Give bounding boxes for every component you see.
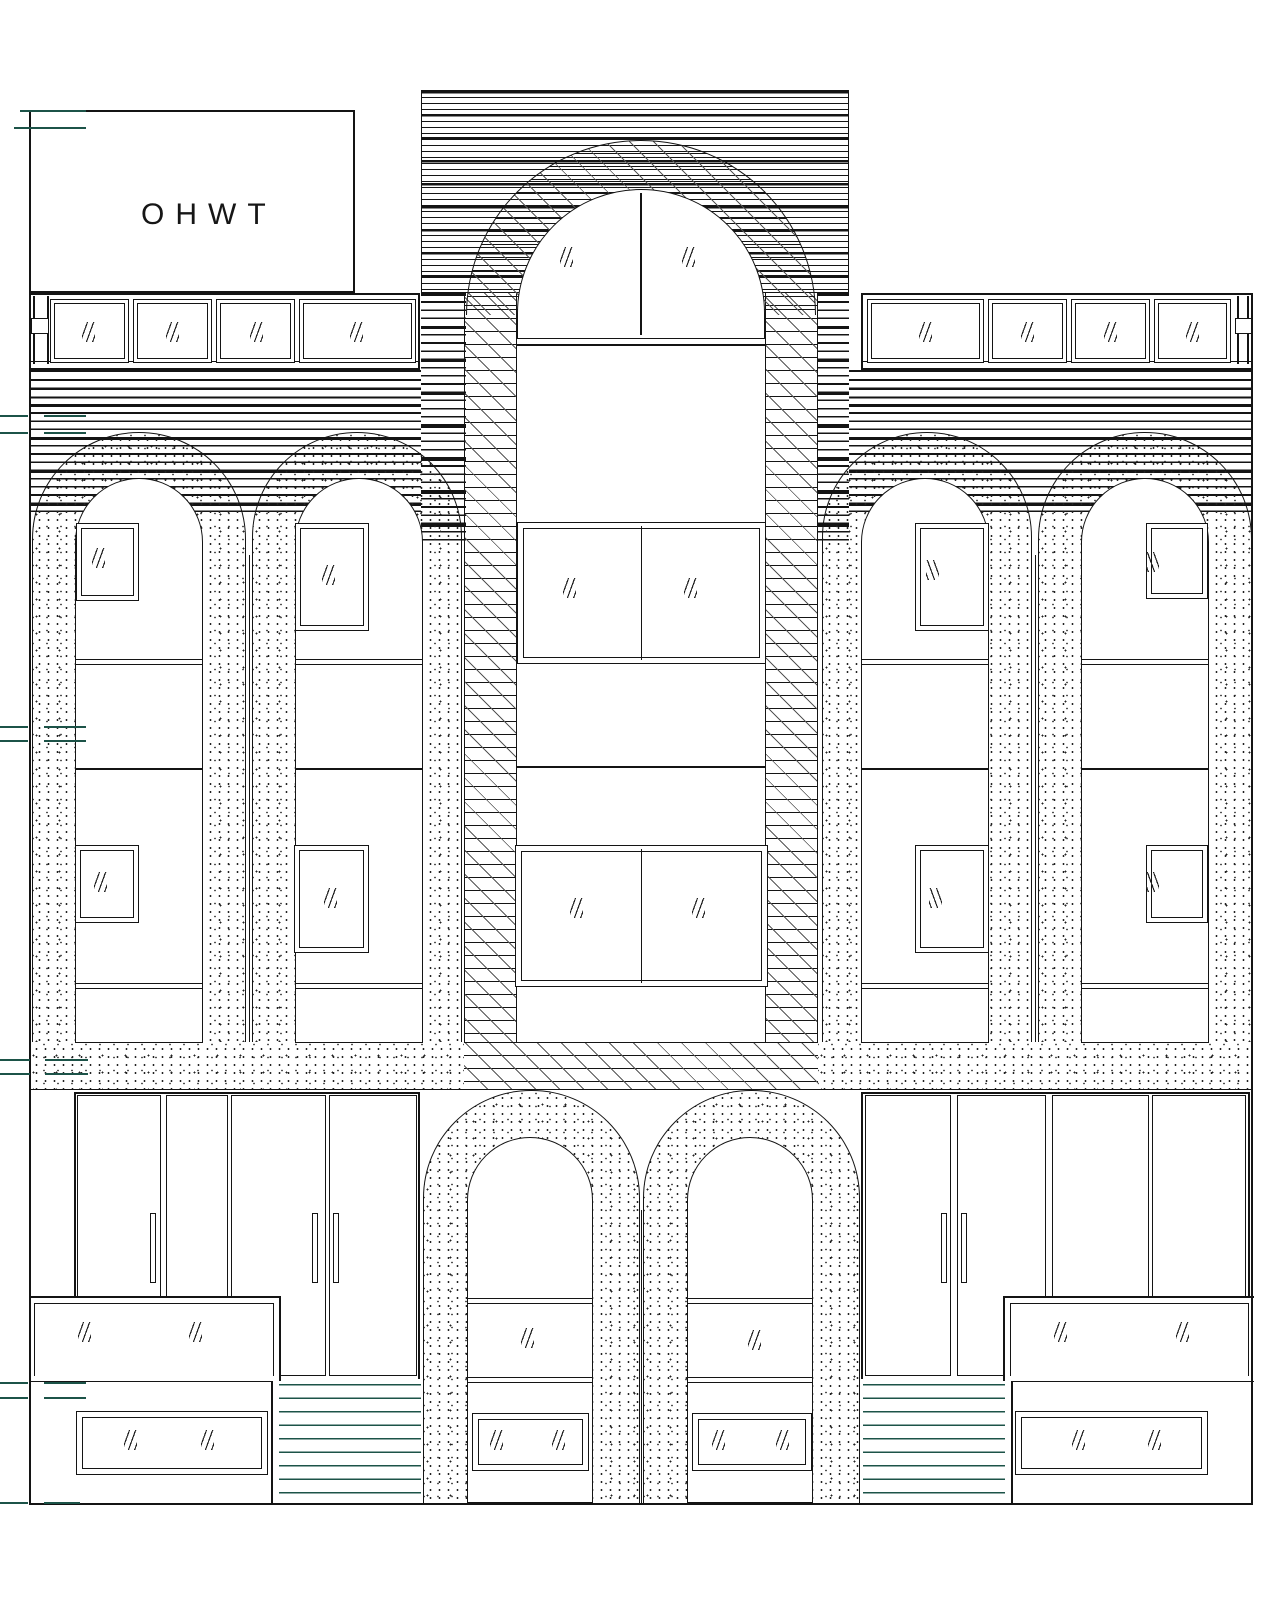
glass-pane-icon	[201, 1430, 214, 1450]
glass-pane-icon	[124, 1430, 137, 1450]
elevation-tick-icon	[0, 415, 28, 417]
door-frame-jamb	[418, 1092, 420, 1379]
glass-pane-icon	[1021, 322, 1034, 342]
tower-pilaster-left	[464, 293, 517, 1042]
facade-elevation-canvas: OHWT	[0, 0, 1280, 1600]
stairs-left	[279, 1384, 421, 1503]
wall-band-upper-right	[849, 370, 1253, 404]
tower-floor-line	[517, 766, 766, 768]
tower-base-band	[464, 1042, 818, 1090]
elevation-tick-icon	[44, 1382, 86, 1384]
recess-line	[861, 988, 989, 989]
recess-line	[295, 768, 423, 770]
glass-pane-icon	[1146, 872, 1159, 892]
glass-pane-icon	[1072, 1430, 1085, 1450]
pier-joint-line-left	[249, 555, 250, 1042]
tower-window-sill	[517, 344, 765, 346]
wall-band-upper-left	[30, 370, 421, 404]
elevation-tick-icon	[20, 110, 86, 112]
door-frame-head-right	[861, 1092, 1250, 1094]
door-handle-icon	[333, 1213, 339, 1283]
recess-line	[1081, 659, 1209, 660]
recess-line	[1081, 983, 1209, 984]
glass-pane-icon	[919, 322, 932, 342]
recess-line	[295, 988, 423, 989]
recess-line	[75, 983, 203, 984]
glass-pane-icon	[926, 560, 939, 580]
tower-middle-window	[517, 522, 766, 664]
counter-right	[1003, 1296, 1254, 1381]
door-frame-jamb	[861, 1092, 863, 1379]
elevation-tick-icon	[44, 415, 86, 417]
glass-pane-icon	[682, 247, 695, 267]
door-leaf	[329, 1095, 417, 1376]
glass-pane-icon	[92, 548, 105, 568]
glass-pane-icon	[552, 1430, 565, 1450]
recess-line	[687, 1298, 813, 1299]
recess-line	[861, 983, 989, 984]
glass-pane-icon	[1186, 322, 1199, 342]
door-handle-icon	[961, 1213, 967, 1283]
recess-line	[467, 1303, 593, 1304]
elevation-tick-icon	[45, 1073, 88, 1075]
base-window-left	[76, 1411, 268, 1475]
recess-line	[861, 664, 989, 665]
glass-pane-icon	[78, 1322, 91, 1342]
elevation-tick-icon	[44, 432, 86, 434]
recess-line	[687, 1382, 813, 1383]
glass-pane-icon	[350, 322, 363, 342]
glass-pane-icon	[929, 888, 942, 908]
glass-pane-icon	[490, 1430, 503, 1450]
title-block: OHWT	[29, 110, 355, 293]
elevation-tick-icon	[0, 1502, 28, 1504]
glass-pane-icon	[82, 322, 95, 342]
glass-pane-icon	[684, 578, 697, 598]
elevation-tick-icon	[0, 1397, 28, 1399]
elevation-tick-icon	[45, 1059, 88, 1061]
ground-floor-line	[30, 1089, 1253, 1090]
outline-wall-right	[1251, 293, 1253, 1505]
glass-pane-icon	[1054, 1322, 1067, 1342]
recess-line	[467, 1298, 593, 1299]
recess-line	[1081, 768, 1209, 770]
cap-notch	[31, 318, 49, 334]
elevation-tick-icon	[0, 432, 28, 434]
glass-pane-icon	[1104, 322, 1117, 342]
stairs-right	[863, 1384, 1005, 1503]
glass-pane-icon	[166, 322, 179, 342]
glass-pane-icon	[560, 247, 573, 267]
glass-pane-icon	[1146, 552, 1159, 572]
recess-line	[861, 768, 989, 770]
recess-line	[1081, 988, 1209, 989]
base-stipple-band-left	[30, 1042, 464, 1089]
recess-line	[687, 1377, 813, 1378]
counter-left	[29, 1296, 281, 1381]
elevation-tick-icon	[0, 726, 28, 728]
recess-line	[861, 659, 989, 660]
base-window-right	[1015, 1411, 1208, 1475]
recess-line	[295, 659, 423, 660]
recess-line	[75, 659, 203, 660]
glass-pane-icon	[324, 888, 337, 908]
glass-pane-icon	[748, 1330, 761, 1350]
elevation-tick-icon	[44, 1397, 86, 1399]
tower-lower-window	[515, 845, 768, 987]
door-frame-head-left	[74, 1092, 420, 1094]
arch-1-upper-window	[76, 523, 139, 601]
glass-pane-icon	[322, 565, 335, 585]
recess-line	[467, 1377, 593, 1378]
recess-line	[75, 768, 203, 770]
tower-pilaster-right	[765, 293, 818, 1042]
recess-line	[75, 988, 203, 989]
door-leaf	[865, 1095, 951, 1376]
elevation-tick-icon	[0, 1073, 30, 1075]
glass-pane-icon	[1176, 1322, 1189, 1342]
recess-line	[467, 1382, 593, 1383]
arch-3-lower-window	[915, 845, 989, 953]
elevation-tick-icon	[44, 740, 86, 742]
door-handle-icon	[312, 1213, 318, 1283]
recess-line	[75, 664, 203, 665]
entry-arch-joint-line	[641, 1210, 642, 1503]
elevation-tick-icon	[14, 127, 86, 129]
glass-pane-icon	[712, 1430, 725, 1450]
elevation-tick-icon	[0, 1059, 30, 1061]
title-label: OHWT	[141, 198, 277, 232]
elevation-tick-icon	[44, 726, 86, 728]
glass-pane-icon	[189, 1322, 202, 1342]
glass-pane-icon	[250, 322, 263, 342]
glass-pane-icon	[563, 578, 576, 598]
base-stipple-band-right	[818, 1042, 1253, 1089]
glass-pane-icon	[570, 898, 583, 918]
recess-line	[295, 983, 423, 984]
glass-pane-icon	[521, 1328, 534, 1348]
elevation-tick-icon	[44, 1502, 80, 1504]
entry-arch-window	[692, 1413, 812, 1471]
pier-joint-line-right	[1035, 555, 1036, 1042]
recess-line	[1081, 664, 1209, 665]
outline-ground-line	[29, 1503, 1253, 1505]
arch-1-lower-window	[75, 845, 139, 923]
elevation-tick-icon	[0, 1382, 28, 1384]
outline-wall-left	[29, 293, 31, 1505]
glass-pane-icon	[1148, 1430, 1161, 1450]
glass-pane-icon	[692, 898, 705, 918]
recess-line	[687, 1303, 813, 1304]
door-handle-icon	[150, 1213, 156, 1283]
elevation-tick-icon	[0, 740, 28, 742]
door-handle-icon	[941, 1213, 947, 1283]
glass-pane-icon	[776, 1430, 789, 1450]
glass-pane-icon	[94, 872, 107, 892]
recess-line	[295, 664, 423, 665]
